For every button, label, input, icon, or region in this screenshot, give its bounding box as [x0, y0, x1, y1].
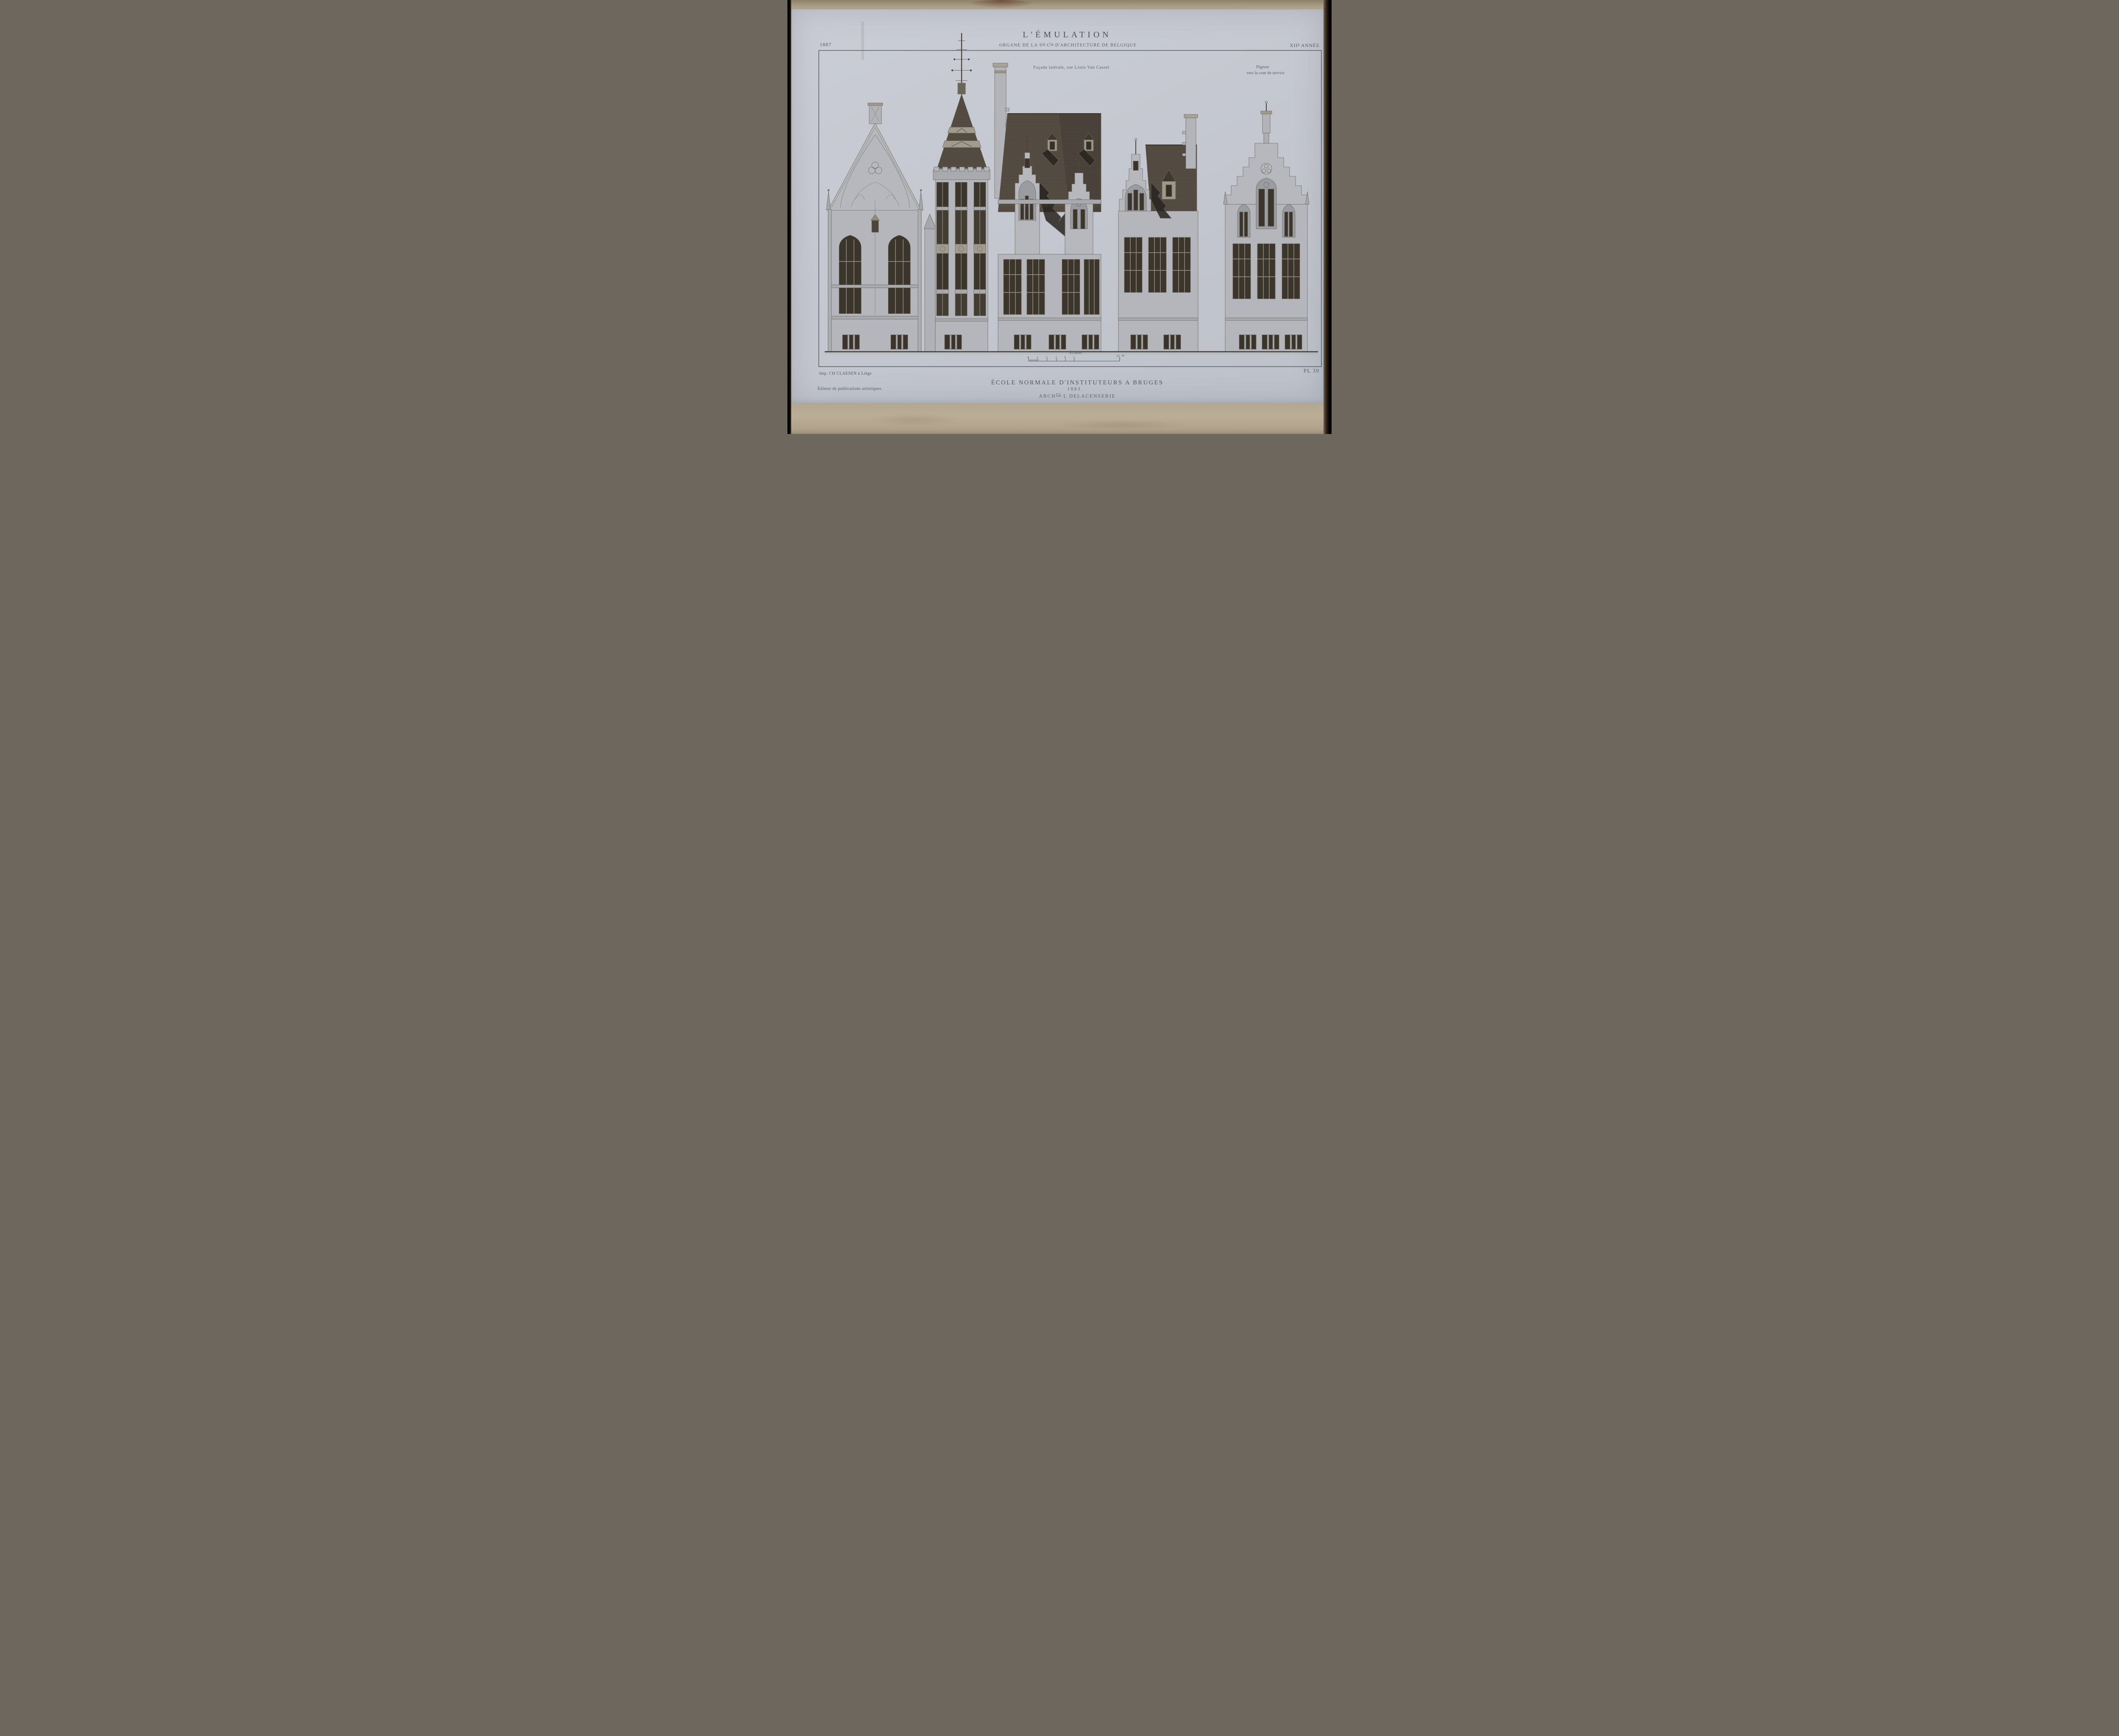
photo-edge-left	[787, 0, 791, 434]
architect-prefix: ARCH	[1039, 394, 1056, 399]
subtitle-part: D'ARCHITECTURE DE BELGIQUE	[1054, 43, 1137, 48]
publisher-imprint: Éditeur de publications artistiques.	[818, 387, 882, 391]
mat-blotch	[1059, 420, 1186, 431]
subtitle-superscript: té	[1043, 42, 1046, 45]
scale-tick-3: 3	[1055, 356, 1057, 359]
mat-stain	[965, 0, 1037, 8]
subtitle-part: C	[1046, 43, 1051, 48]
photo-edge-right	[1324, 0, 1332, 434]
caption-facade-laterale: Façade latérale, rue Louis Van Cassel	[1033, 65, 1109, 70]
journal-title: L'ÉMULATION	[1023, 30, 1111, 40]
caption-pignon-line1: Pignon	[1256, 65, 1269, 70]
mat-blotch	[868, 413, 961, 426]
scale-tick-0: 0	[1027, 356, 1029, 359]
scale-tick-2: 2	[1046, 356, 1048, 359]
scale-tick-1: 1	[1037, 356, 1038, 359]
work-title: ÉCOLE NORMALE D'INSTITUTEURS A BRUGES	[991, 379, 1164, 387]
architect-name: L DELACENSERIE	[1062, 394, 1116, 399]
journal-subtitle: ORGANE DE LA Sté Cle D'ARCHITECTURE DE B…	[999, 42, 1137, 48]
scale-label: Échelle.	[1070, 351, 1083, 355]
paper-streak	[861, 21, 864, 60]
mat-board-top	[791, 0, 1325, 10]
annee-roman: XII	[1290, 43, 1298, 48]
architect-credit: ARCHTE L DELACENSERIE	[1039, 392, 1116, 399]
edition-year: 1887	[820, 42, 831, 48]
printer-imprint: Imp. CH CLAESEN à Liège	[819, 371, 872, 376]
architect-superscript: TE	[1056, 392, 1062, 396]
work-year: 1883	[1068, 387, 1082, 392]
subtitle-part: ORGANE DE LA S	[999, 43, 1043, 48]
scale-unit: m	[1122, 353, 1124, 357]
scale-tick-10: 10	[1116, 354, 1119, 358]
scale-tick-4: 4	[1064, 356, 1066, 359]
photographed-plate: 1887 L'ÉMULATION ORGANE DE LA Sté Cle D'…	[787, 0, 1332, 434]
annee-word: ANNÉE	[1300, 43, 1320, 48]
plate-number: PL 39	[1304, 368, 1319, 374]
caption-pignon-line2: vers la cour de service	[1246, 71, 1284, 75]
scale-tick-5: 5	[1073, 356, 1075, 359]
annee-label: XIIe ANNÉE	[1290, 42, 1320, 48]
